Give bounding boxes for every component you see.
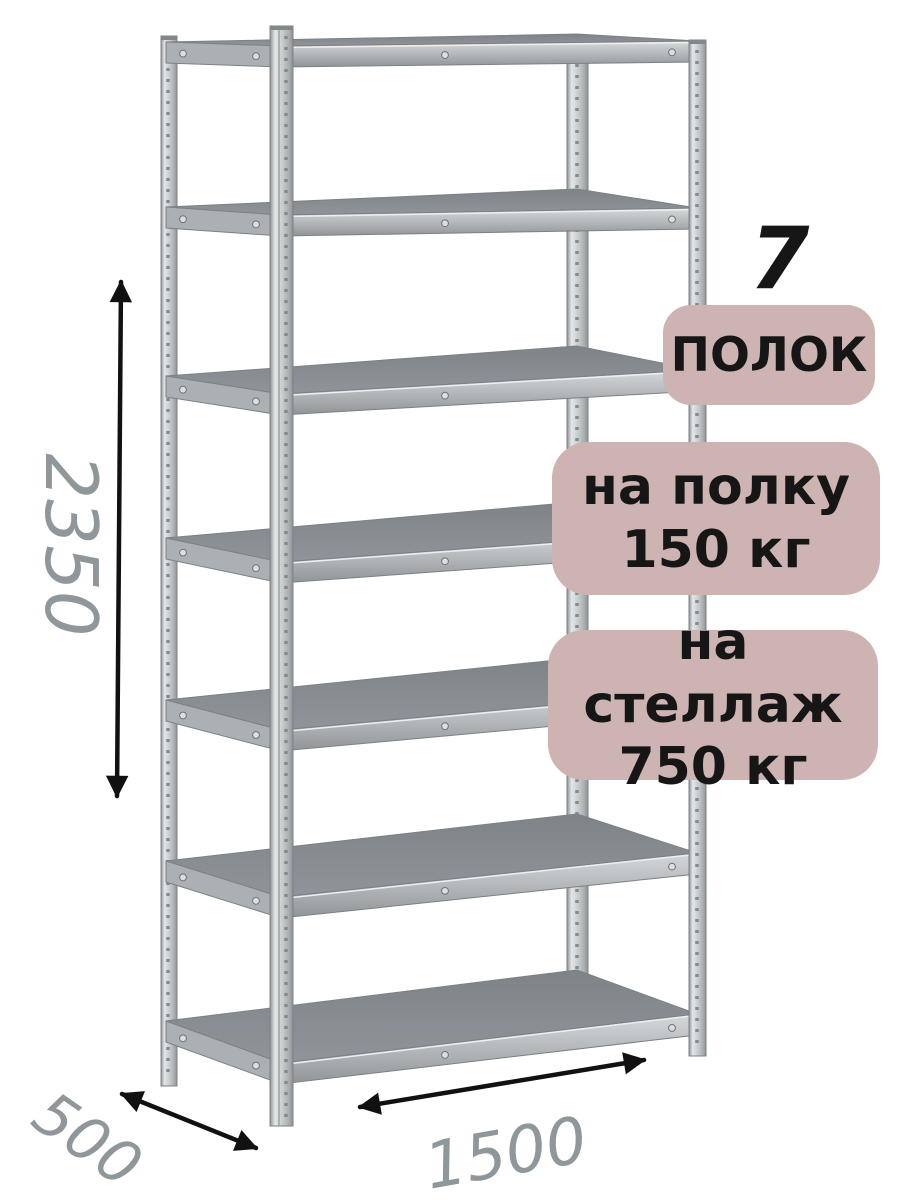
post-front-left [270,26,293,1126]
shelf-bolt [180,712,187,719]
shelf-bolt [442,558,449,565]
shelf-bolt [253,221,260,228]
shelf-bolt [180,549,187,556]
per-rack-load-badge: на стеллаж 750 кг [548,630,878,780]
per-rack-load-line1: на стеллаж [548,611,878,736]
shelf-bolt [669,863,676,870]
shelf-bolt [180,874,187,881]
shelf-3 [166,346,697,415]
shelf-count-badge: ПОЛОК [663,305,875,405]
shelf-bolt [253,398,260,405]
product-image: 7 ПОЛОК на полку 150 кг на стеллаж 750 к… [0,0,900,1200]
shelf-bolt [253,732,260,739]
per-shelf-load-line1: на полку [582,456,850,518]
per-shelf-load-badge: на полку 150 кг [552,442,880,595]
height-dimension-label: 2350 [31,425,111,665]
shelf-bolt [669,1025,676,1032]
shelf-2 [166,189,697,236]
height-dimension-arrow [117,282,121,796]
shelf-bolt [253,1062,260,1069]
shelf-bolt [180,386,187,393]
shelf-bolt [442,220,449,227]
shelf-1 [166,34,697,67]
shelving-unit-illustration [0,0,900,1200]
shelf-bolt [180,50,187,57]
shelf-bolt [253,53,260,60]
shelf-bolt [442,52,449,59]
shelf-bolt [442,723,449,730]
shelf-bolt [180,216,187,223]
shelf-bolt [253,897,260,904]
shelf-count-label: ПОЛОК [671,328,868,383]
shelf-6 [166,814,697,918]
per-rack-load-line2: 750 кг [618,736,807,798]
shelf-bolt [442,1051,449,1058]
per-shelf-load-line2: 150 кг [621,519,810,581]
shelf-bolt [669,216,676,223]
shelf-bolt [180,1035,187,1042]
shelf-count-number: 7 [722,212,837,307]
shelf-bolt [442,887,449,894]
shelf-7 [166,970,697,1084]
shelf-bolt [253,565,260,572]
shelf-bolt [442,392,449,399]
shelf-bolt [669,49,676,56]
